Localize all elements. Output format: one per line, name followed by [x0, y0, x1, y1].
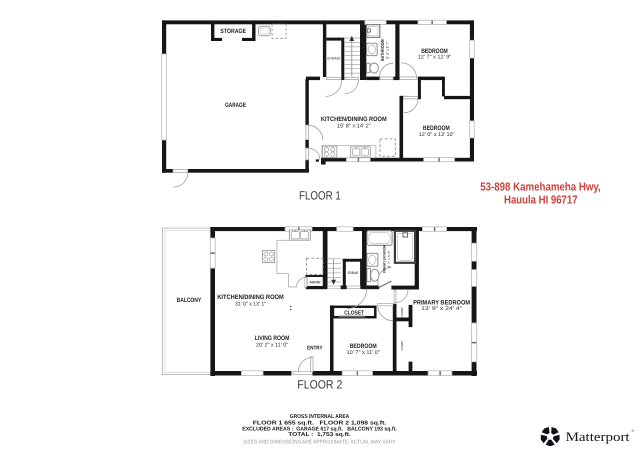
svg-text:ENTRY: ENTRY	[307, 346, 323, 352]
svg-text:Hauula HI 96717: Hauula HI 96717	[504, 194, 578, 207]
svg-text:12' 0" x 13' 10": 12' 0" x 13' 10"	[419, 132, 455, 138]
svg-text:31' 0" x 13' 1": 31' 0" x 13' 1"	[235, 301, 266, 307]
svg-text:STORAGE: STORAGE	[327, 57, 340, 61]
svg-text:FLOOR 2: FLOOR 2	[297, 377, 342, 391]
svg-text:5' 4" x 9' 7": 5' 4" x 9' 7"	[385, 41, 390, 59]
svg-text:®: ®	[632, 429, 635, 433]
svg-text:CLOSET: CLOSET	[400, 341, 404, 351]
svg-text:GROSS INTERNAL AREA: GROSS INTERNAL AREA	[290, 414, 350, 420]
svg-text:12' 7" x 12' 9": 12' 7" x 12' 9"	[418, 54, 452, 60]
svg-text:CLOSET: CLOSET	[344, 309, 364, 316]
svg-text:BEDROOM: BEDROOM	[423, 125, 450, 132]
svg-text:13' 9" x 24' 4": 13' 9" x 24' 4"	[421, 306, 462, 312]
svg-text:TOTAL : 1,753 sq.ft.: TOTAL : 1,753 sq.ft.	[288, 431, 351, 438]
svg-text:BALCONY: BALCONY	[177, 297, 202, 304]
svg-text:CLOSET: CLOSET	[400, 307, 404, 317]
svg-text:15' 8" x 14' 2": 15' 8" x 14' 2"	[337, 123, 371, 129]
svg-text:PRIMARY BATHROOM: PRIMARY BATHROOM	[382, 245, 386, 273]
svg-text:20' 2" x 11' 0": 20' 2" x 11' 0"	[256, 342, 288, 348]
svg-text:10' 7" x 11' 0": 10' 7" x 11' 0"	[347, 350, 380, 356]
svg-text:8' 7" x 5' 8": 8' 7" x 5' 8"	[387, 250, 391, 268]
svg-text:KITCHEN/DINING ROOM: KITCHEN/DINING ROOM	[217, 294, 284, 301]
svg-text:53-898 Kamehameha Hwy,: 53-898 Kamehameha Hwy,	[480, 181, 601, 194]
svg-text:GARAGE: GARAGE	[225, 102, 246, 109]
svg-text:FLOOR 1: FLOOR 1	[299, 188, 341, 202]
svg-text:LIVING ROOM: LIVING ROOM	[255, 335, 290, 342]
svg-text:STORAGE: STORAGE	[220, 28, 246, 35]
svg-text:KITCHEN/DINING ROOM: KITCHEN/DINING ROOM	[321, 116, 387, 123]
svg-text:STORAGE: STORAGE	[348, 271, 359, 275]
svg-text:Matterport: Matterport	[566, 429, 630, 444]
svg-text:FLOOR 1 655 sq.ft. FLOOR 2 1: FLOOR 1 655 sq.ft. FLOOR 2 1,098 sq.ft.	[253, 419, 387, 426]
svg-text:PANTRY: PANTRY	[310, 281, 321, 285]
svg-text:SIZES AND DIMENSIONS ARE APPRO: SIZES AND DIMENSIONS ARE APPROXIMATE, AC…	[243, 440, 396, 446]
